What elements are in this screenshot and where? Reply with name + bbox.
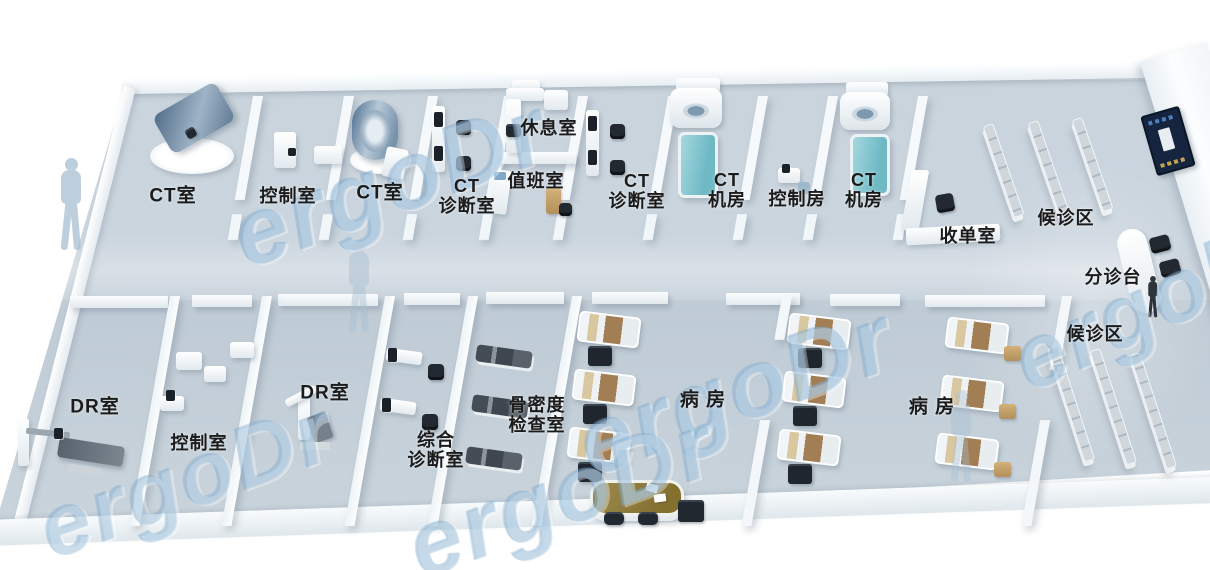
bedside-cabinet [999,404,1016,419]
pillow [494,172,506,180]
monitor [388,348,397,362]
medical-device [583,404,607,424]
room-label-ct-machine-room-1: CT 机房 [708,170,746,210]
room-label-bone-density-room: 骨密度 检查室 [509,395,566,435]
waiting-area-highlight [960,160,1210,460]
dr-stand-column [18,418,29,466]
office-chair [456,120,471,135]
staff-figure [1146,276,1154,294]
console-desk [230,342,254,358]
room-label-control-room-top: 控制室 [260,186,317,206]
room-label-receipt-room: 收单室 [940,226,997,246]
corridor-wall [486,292,564,304]
room-label-ct-diagnosis-room-2: CT 诊断室 [609,171,666,211]
office-chair [456,156,471,171]
corridor-wall [925,295,1045,307]
medical-device [793,406,817,426]
stool [638,512,658,525]
room-label-ct-room-1: CT室 [149,185,196,206]
monitor [588,150,597,165]
office-chair [610,124,625,139]
room-label-dr-room-1: DR室 [70,396,119,417]
room-label-waiting-area-bottom: 候诊区 [1067,324,1124,344]
corridor-wall [404,293,460,305]
person-silhouette [344,240,374,345]
corridor-wall [830,294,900,306]
console-desk [204,366,226,382]
medical-device [788,464,812,484]
console-desk [176,352,202,370]
stool [604,512,624,525]
medical-device [578,462,602,482]
floorplan-scene: ergoDr ergoDr ergoDr ergoDr ergoDr CT室 控… [0,0,1210,570]
oval-table [590,480,684,516]
ct-gantry [670,88,722,128]
office-chair [559,203,572,216]
monitor [434,112,443,127]
office-chair [428,364,444,380]
ct-scanner-bore [360,110,390,152]
person-silhouette [56,158,86,253]
monitor [588,116,597,131]
monitor [166,390,175,401]
corridor-wall [70,296,168,308]
room-label-triage-station: 分诊台 [1085,267,1142,287]
medical-device [588,346,612,366]
room-label-duty-room: 值班室 [508,171,565,191]
monitor [382,398,391,412]
fridge [544,90,568,110]
monitor [782,164,790,173]
room-label-waiting-area-top: 候诊区 [1038,208,1095,228]
medical-device [798,348,822,368]
storage-box [678,500,704,522]
paper-sheet [654,493,667,503]
sink [506,124,521,137]
office-chair [935,193,956,214]
room-label-control-room-mid: 控制房 [769,189,826,209]
room-label-rest-room: 休息室 [521,118,578,138]
monitor [434,146,443,161]
room-label-ct-diagnosis-room-1: CT 诊断室 [439,176,496,216]
room-label-ct-machine-room-2: CT 机房 [845,170,883,210]
monitor [54,428,63,439]
ct-gantry [840,92,890,130]
bedside-cabinet [994,462,1011,477]
wall-divider [498,152,576,164]
room-label-ct-room-2: CT室 [356,182,403,203]
corridor-wall [592,292,668,304]
desk [314,146,342,164]
room-label-dr-room-2: DR室 [300,382,349,403]
bedside-cabinet [1004,346,1021,361]
dr-base [300,442,330,450]
room-label-comprehensive-diagnosis-room: 综合 诊断室 [408,430,465,470]
office-chair [422,414,438,430]
room-label-ward-2: 病 房 [909,396,955,417]
corridor-wall [192,295,252,307]
room-label-ward-1: 病 房 [680,389,726,410]
monitor [288,148,296,156]
room-label-control-room-bottom: 控制室 [171,433,228,453]
